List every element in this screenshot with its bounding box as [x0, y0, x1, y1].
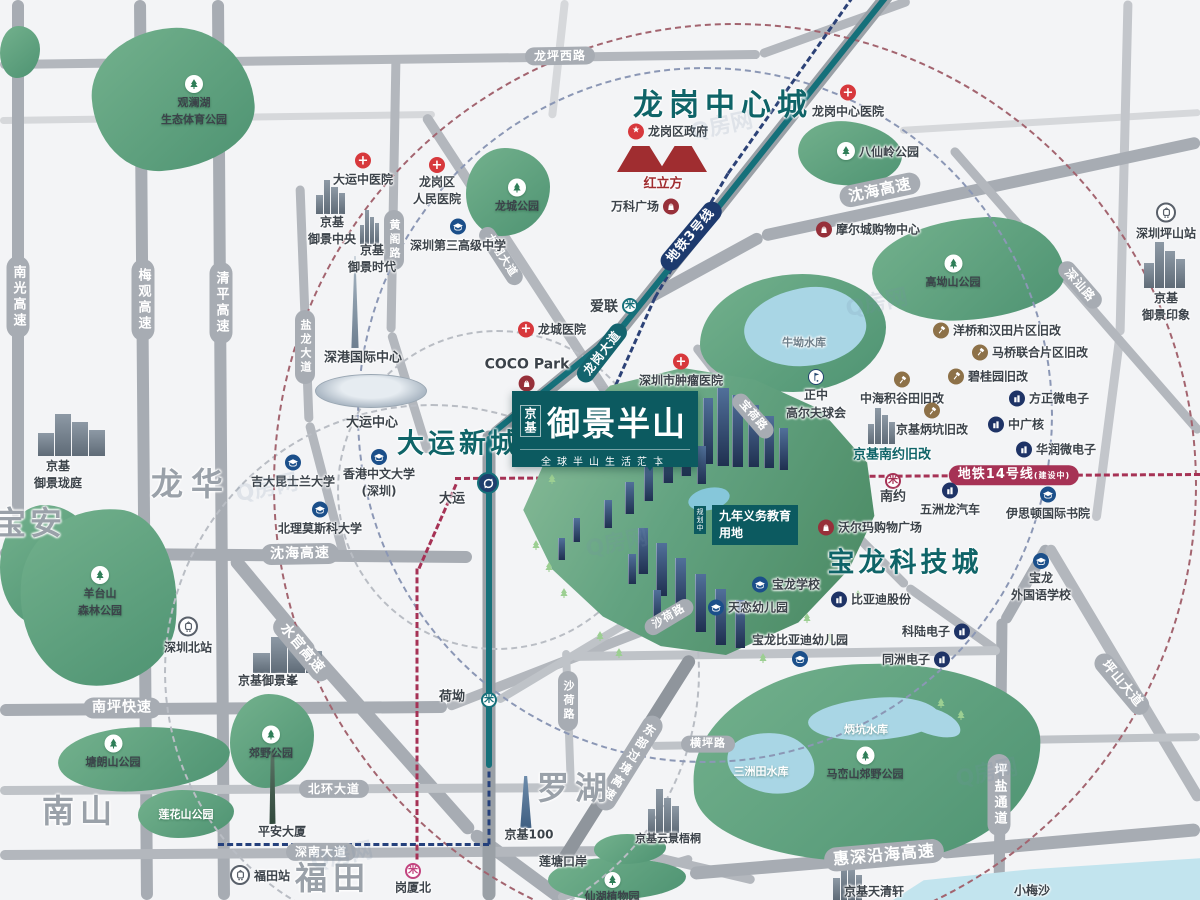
schools-baolong: 宝龙学校 [772, 576, 820, 593]
pine-tree-icon [935, 694, 947, 710]
landmarks-coco: COCO Park [485, 357, 570, 373]
metro-nanyue: 南约 [880, 490, 906, 505]
schools-byd_kg: 宝龙比亚迪幼儿园 [752, 631, 848, 648]
waters-xiaomeisha-label: 小梅沙 [1014, 882, 1050, 899]
plot-line1: 九年义务教育 [719, 508, 791, 525]
redev-bgy: 碧桂园旧改 [968, 368, 1028, 385]
districts-dayun: 大运新城 [397, 429, 521, 460]
companies-founder: 方正微电子 [1009, 390, 1089, 407]
metro-gangxiabei: 岗厦北 [395, 881, 431, 895]
rail-szbei: 深圳北站 [164, 639, 212, 656]
pine-tree-icon [530, 536, 542, 552]
kingkey-brand: 京基 [320, 213, 344, 230]
stadium-dayun-center [315, 374, 427, 408]
parks-maluan: 马峦山郊野公园 [827, 766, 904, 782]
landmarks-liantang: 莲塘口岸 [539, 855, 587, 869]
hospitals-renmin2: 人民医院 [413, 190, 461, 207]
landmarks-vanke: 万科广场 [611, 198, 659, 215]
redev-yangqiao: 洋桥和汉田片区旧改 [953, 322, 1061, 339]
roads-qingping-roadsign: 清平高速 [210, 262, 233, 344]
schools-tianlian: 天恋幼儿园 [708, 599, 788, 616]
project-tower [697, 446, 706, 484]
construction-note: (建设中) [1034, 471, 1070, 480]
hospital-cross-icon: + [429, 157, 445, 173]
park-tree-icon [837, 142, 855, 160]
metro-nanyue-label: 南约 [880, 486, 906, 505]
metro-dashed [488, 772, 491, 845]
parks-tanglang: 塘朗山公园 [86, 735, 141, 770]
districts-luohu-label: 罗湖 [537, 763, 613, 809]
roads-beihuan: 北环大道 [308, 782, 360, 796]
pine-tree-icon [955, 706, 967, 722]
roads-hengping: 横坪路 [690, 737, 726, 750]
redevelopment-gavel-icon [933, 322, 949, 338]
project-tower [717, 388, 729, 466]
school-cap-icon [450, 219, 466, 235]
companies-tongzhou: 同洲电子 [882, 651, 950, 668]
railway-station-icon [1156, 203, 1176, 223]
kingkey-impression: 京基御景印象 [1142, 289, 1190, 323]
kingkey-tianqing: 京基天清轩 [844, 885, 904, 899]
road [387, 55, 401, 332]
kingkey-era: 御景时代 [348, 258, 396, 275]
companies-cgn: 中广核 [1008, 416, 1044, 433]
parks-guanlanhu1: 观澜湖生态体育公园 [161, 75, 227, 127]
redev-jkbk: 京基炳坑旧改 [896, 421, 968, 438]
metro-station-gangxiabei: 米 [405, 858, 421, 879]
companies-wzl: 五洲龙汽车 [920, 483, 980, 518]
towers-yunjing-wutong [648, 789, 680, 833]
kingkey-feng-label: 京基御景峯 [238, 672, 298, 689]
kingkey-feng: 京基御景峯 [238, 674, 298, 688]
companies-cgn: 中广核 [988, 416, 1044, 433]
districts-luohu: 罗湖 [537, 769, 613, 807]
waters-sanzhoutian-label: 三洲田水库 [734, 763, 789, 779]
waters-bingkeng: 炳坑水库 [844, 723, 888, 736]
park-tree-icon [508, 179, 526, 197]
hospitals-dayun: +大运中医院 [333, 153, 393, 188]
project-brand: 京基 [520, 405, 541, 437]
company-building-icon [954, 623, 970, 639]
metro-dayun-label: 大运 [439, 488, 465, 507]
school-cap-icon [1040, 487, 1056, 503]
parks-xianhu: 仙湖植物园 [585, 888, 640, 900]
project-tower [628, 554, 636, 584]
redev-bgy: 碧桂园旧改 [948, 368, 1028, 385]
project-logo: 京基御景半山全球半山生活范本 [512, 391, 698, 467]
plot-line2: 用地 [719, 525, 791, 542]
kingkey-tianqing-label: 京基天清轩 [844, 883, 904, 900]
metro-heao-label: 荷坳 [439, 686, 465, 705]
parks-tanglang: 塘朗山公园 [86, 754, 141, 770]
companies-byd: 比亚迪股份 [851, 591, 911, 608]
pine-tree-icon [594, 627, 606, 643]
landmarks-coco: COCO Park [485, 357, 570, 392]
metro-station-icon: 米 [481, 692, 497, 708]
redev-yangqiao: 洋桥和汉田片区旧改 [933, 322, 1061, 339]
towers-yujing-era [360, 210, 380, 244]
road [904, 582, 999, 653]
schools-cuhk2: (深圳) [362, 482, 397, 499]
districts-longhua: 龙华 [151, 465, 231, 503]
roads-shenshan: 深汕路 [1062, 266, 1098, 305]
redev-maqiao: 马桥联合片区旧改 [992, 344, 1088, 361]
parks-maluan: 马峦山郊野公园 [827, 747, 904, 782]
parks-jiaoye: 郊野公园 [249, 726, 293, 761]
schools-no3: 深圳第三高级中学 [410, 219, 506, 254]
roads-nanguang: 南光高速 [11, 265, 26, 329]
roads-nanguang-roadsign: 南光高速 [7, 256, 30, 338]
hospitals-renmin1: +龙岗区人民医院 [413, 157, 461, 207]
project-tower [558, 538, 565, 560]
hospitals-tumor: 深圳市肿瘤医院 [639, 372, 723, 389]
rail-futian: 福田站 [230, 865, 290, 885]
hospital-cross-icon: + [673, 354, 689, 370]
redevelopment-gavel-icon [924, 403, 940, 419]
landmarks-golf1: 正中高尔夫球会 [786, 369, 846, 421]
project-tower [573, 518, 580, 542]
schools-foreign1: 宝龙外国语学校 [1011, 553, 1071, 603]
road [900, 109, 1200, 134]
metro-line14: 地铁14号线 [958, 467, 1034, 482]
school-cap-icon [312, 502, 328, 518]
schools-foreign1: 宝龙 [1029, 569, 1053, 586]
districts-baoan: 宝安 [0, 504, 66, 542]
park-tanglangshan [57, 724, 231, 794]
hospitals-tumor: +深圳市肿瘤医院 [639, 354, 723, 389]
roads-meiguan: 梅观高速 [136, 268, 151, 332]
districts-dayun-label: 大运新城 [397, 422, 521, 461]
parks-lianhua-label: 莲花山公园 [159, 806, 214, 822]
roads-shenhai-roadsign: 沈海高速 [261, 543, 339, 565]
schools-yisidun: 伊思顿国际书院 [1006, 505, 1090, 522]
companies-byd: 比亚迪股份 [831, 591, 911, 608]
redev-jkny-label: 京基南约旧改 [853, 444, 931, 463]
landmarks-pingan-label: 平安大厦 [258, 823, 306, 840]
park-area [0, 26, 40, 78]
rail-szbei: 深圳北站 [164, 617, 212, 656]
park-tree-icon [856, 747, 874, 765]
schools-foreign2: 外国语学校 [1011, 586, 1071, 603]
waters-xiaomeisha: 小梅沙 [1014, 884, 1050, 898]
school-cap-icon [708, 599, 724, 615]
towers-jkny [868, 408, 896, 444]
redevelopment-gavel-icon [972, 344, 988, 360]
road [0, 701, 447, 716]
companies-founder: 方正微电子 [1029, 390, 1089, 407]
landmarks-golf1: 正中 [804, 386, 828, 403]
park-tree-icon [604, 872, 620, 888]
project-tower [779, 428, 788, 470]
metro-gangxiabei-label: 岗厦北 [395, 879, 431, 896]
landmarks-shengang-label: 深港国际中心 [324, 347, 402, 366]
parks-yangtai1: 羊台山森林公园 [78, 566, 122, 618]
company-building-icon [831, 591, 847, 607]
shopping-bag-icon [519, 376, 535, 392]
schools-cuhk1: 香港中文大学 [343, 465, 415, 482]
landmarks-redcube: 红立方 [643, 177, 682, 192]
road [1116, 0, 1133, 335]
redev-zhonghai: 中海积谷田旧改 [860, 372, 944, 407]
companies-tongzhou: 同洲电子 [882, 651, 930, 668]
landmarks-kk100-label: 京基100 [504, 826, 553, 843]
roads-beihuan-roadsign: 北环大道 [299, 780, 369, 798]
landmarks-redcube-label: 红立方 [643, 173, 682, 192]
waters-niuao-label: 牛坳水库 [782, 334, 826, 350]
park-tree-icon [104, 735, 122, 753]
school-cap-icon [752, 576, 768, 592]
project-tower [695, 574, 706, 632]
parks-longcheng: 龙城公园 [495, 198, 539, 214]
roads-meiguan-roadsign: 梅观高速 [132, 259, 155, 341]
hospitals-renmin1: 龙岗区 [419, 173, 455, 190]
hospitals-dayun: 大运中医院 [333, 171, 393, 188]
shopping-bag-icon [816, 221, 832, 237]
metro-interchange-dayun [477, 472, 499, 495]
landmarks-vanke: 万科广场 [611, 198, 679, 215]
roads-qingping: 清平高速 [214, 271, 229, 335]
parks-yangtai1: 羊台山 [84, 585, 117, 601]
government-star-icon: ★ [628, 123, 644, 139]
districts-baoan-label: 宝安 [0, 498, 66, 544]
waters-bingkeng-label: 炳坑水库 [844, 721, 888, 737]
parks-yangtai2: 森林公园 [78, 602, 122, 618]
kingkey-brand: 京基 [46, 457, 70, 474]
project-tagline: 全球半山生活范本 [520, 449, 690, 468]
landmarks-liantang-label: 莲塘口岸 [539, 853, 587, 870]
waters-sanzhoutian: 三洲田水库 [734, 765, 789, 778]
roads-shahe: 沙荷路 [562, 680, 575, 722]
metro-ailian: 爱联米 [590, 296, 638, 316]
school-cap-icon [371, 449, 387, 465]
roads-shenshan-roadsign: 深汕路 [1054, 258, 1105, 313]
landmarks-shengang: 深港国际中心 [324, 351, 402, 366]
schools-yisidun: 伊思顿国际书院 [1006, 487, 1090, 522]
landmarks-golf2: 高尔夫球会 [786, 404, 846, 421]
parks-baxianling: 八仙岭公园 [859, 143, 919, 160]
landmarks-walmart: 沃尔玛购物广场 [838, 519, 922, 536]
companies-kelu: 科陆电子 [902, 623, 970, 640]
road [307, 648, 477, 837]
landmarks-dayun_center-label: 大运中心 [346, 412, 398, 431]
parks-jiaoye: 郊野公园 [249, 745, 293, 761]
landmarks-kk100: 京基100 [504, 828, 553, 842]
roads-yanlong-roadsign: 盐龙大道 [295, 310, 315, 384]
hospitals-longcheng: +龙城医院 [518, 321, 586, 338]
metro-interchange-icon [477, 472, 499, 494]
kingkey-wutong-label: 京基云景梧桐 [635, 830, 701, 846]
pine-tree-icon [613, 644, 625, 660]
towers-yujing-impression [1144, 242, 1186, 288]
companies-crmicro: 华润微电子 [1016, 441, 1096, 458]
metro-dayun: 大运 [439, 492, 465, 507]
logo-pointer [642, 459, 658, 479]
parks-lianhua: 莲花山公园 [159, 808, 214, 821]
plot-planning-tag: 规划中 [694, 506, 706, 534]
rail-pingshan: 深圳坪山站 [1136, 203, 1196, 242]
districts-longhua-label: 龙华 [151, 459, 231, 505]
kingkey-impression: 御景印象 [1142, 306, 1190, 323]
districts-nanshan-label: 南山 [42, 786, 118, 832]
roads-longping_w: 龙坪西路 [534, 48, 586, 63]
company-building-icon [988, 416, 1004, 432]
education-plot-label: 九年义务教育用地 [712, 505, 798, 545]
metro-station-heao: 米 [481, 687, 497, 708]
roads-nanping: 南坪快速 [92, 700, 152, 716]
schools-no3: 深圳第三高级中学 [410, 237, 506, 254]
shopping-bag-icon [663, 198, 679, 214]
districts-nanshan: 南山 [42, 792, 118, 830]
project-name: 御景半山 [547, 397, 687, 445]
shopping-bag-icon [818, 519, 834, 535]
companies-crmicro: 华润微电子 [1036, 441, 1096, 458]
kingkey-brand: 京基 [1154, 289, 1178, 306]
company-building-icon [1009, 390, 1025, 406]
kingkey-brand: 京基 [360, 241, 384, 258]
parks-guanlanhu2: 生态体育公园 [161, 111, 227, 127]
roads-nanping-roadsign: 南坪快速 [83, 698, 161, 719]
rail-futian: 福田站 [254, 867, 290, 884]
school-cap-icon [792, 651, 808, 667]
parks-xianhu: 仙湖植物园 [585, 872, 640, 900]
redevelopment-gavel-icon [948, 368, 964, 384]
company-building-icon [934, 651, 950, 667]
parks-longcheng: 龙城公园 [495, 179, 539, 214]
kingkey-wutong: 京基云景梧桐 [635, 832, 701, 845]
project-tower [656, 543, 667, 596]
park-tree-icon [262, 726, 280, 744]
parks-gaoao: 高坳山公园 [926, 274, 981, 290]
park-tree-icon [185, 75, 203, 93]
metro-ailian: 爱联 [590, 296, 618, 316]
companies-kelu: 科陆电子 [902, 623, 950, 640]
redev-jkbk: 京基炳坑旧改 [896, 403, 968, 438]
districts-baolong-label: 宝龙科技城 [828, 541, 983, 580]
railway-station-icon [178, 617, 198, 637]
railway-station-icon [230, 865, 250, 885]
landmarks-moer: 摩尔城购物中心 [816, 221, 920, 238]
hospital-cross-icon: + [518, 321, 534, 337]
location-map[interactable]: 龙坪西路沈海高速沈海高速南光高速梅观高速清平高速盐龙大道黄阁路龙翔大道龙岗大道地… [0, 0, 1200, 900]
kingkey-longting: 御景珑庭 [34, 474, 82, 491]
redev-jkny: 京基南约旧改 [853, 448, 931, 463]
towers-yujing-longting [38, 414, 106, 456]
landmarks-walmart: 沃尔玛购物广场 [818, 519, 922, 536]
pine-tree-icon [546, 470, 558, 486]
roads-shahe-roadsign: 沙荷路 [558, 671, 578, 731]
roads-longping_w-roadsign: 龙坪西路 [525, 46, 595, 65]
roads-yanlong: 盐龙大道 [299, 319, 312, 375]
red-cube-building [617, 146, 707, 172]
schools-beili: 北理莫斯科大学 [278, 520, 362, 537]
metro-station-icon: 米 [405, 863, 421, 879]
districts-baolong: 宝龙科技城 [828, 548, 983, 579]
pine-tree-icon [558, 584, 570, 600]
metro-station-icon: 米 [622, 298, 638, 314]
kingkey-longting: 京基御景珑庭 [34, 457, 82, 491]
metro-line14 [416, 569, 419, 860]
school-cap-icon [1033, 553, 1049, 569]
parks-gaoao: 高坳山公园 [926, 255, 981, 290]
redevelopment-gavel-icon [894, 372, 910, 388]
pine-tree-icon [543, 558, 555, 574]
company-building-icon [942, 483, 958, 499]
companies-wzl: 五洲龙汽车 [920, 501, 980, 518]
landmarks-pingan: 平安大厦 [258, 825, 306, 839]
rail-pingshan: 深圳坪山站 [1136, 225, 1196, 242]
hospitals-center: 龙岗中心医院 [812, 103, 884, 120]
landmarks-moer: 摩尔城购物中心 [836, 221, 920, 238]
project-tower [604, 500, 612, 528]
parks-baxianling: 八仙岭公园 [837, 142, 919, 160]
hospitals-longcheng: 龙城医院 [538, 321, 586, 338]
schools-tianlian: 天恋幼儿园 [728, 599, 788, 616]
hospital-cross-icon: + [840, 85, 856, 101]
schools-beili: 北理莫斯科大学 [278, 502, 362, 537]
hospitals-center: +龙岗中心医院 [812, 85, 884, 120]
company-building-icon [1016, 441, 1032, 457]
roads-hengping-roadsign: 横坪路 [681, 736, 735, 753]
park-tree-icon [944, 255, 962, 273]
roads-shenhai: 沈海高速 [270, 545, 330, 562]
schools-byd_kg: 宝龙比亚迪幼儿园 [752, 631, 848, 667]
hospital-cross-icon: + [355, 153, 371, 169]
project-tower [715, 589, 726, 645]
road [1092, 334, 1125, 520]
golf-flag-icon [808, 369, 824, 385]
parks-guanlanhu1: 观澜湖 [178, 94, 211, 110]
redev-maqiao: 马桥联合片区旧改 [972, 344, 1088, 361]
park-tree-icon [91, 566, 109, 584]
landmarks-dayun_center: 大运中心 [346, 416, 398, 431]
project-tower [625, 482, 634, 514]
metro-heao: 荷坳 [439, 690, 465, 705]
schools-baolong: 宝龙学校 [752, 576, 820, 593]
kingkey-era: 京基御景时代 [348, 241, 396, 275]
pine-tree-icon [801, 609, 813, 625]
schools-cuhk1: 香港中文大学(深圳) [343, 449, 415, 499]
waters-niuao: 牛坳水库 [782, 336, 826, 349]
